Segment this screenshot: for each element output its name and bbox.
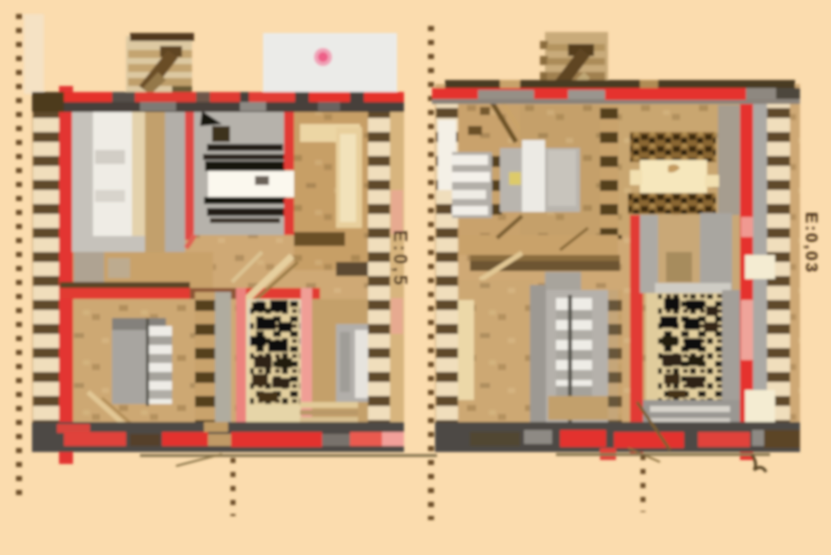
svg-text:E:0,5: E:0,5 [390,230,410,288]
svg-text:E:0,03: E:0,03 [802,212,821,274]
